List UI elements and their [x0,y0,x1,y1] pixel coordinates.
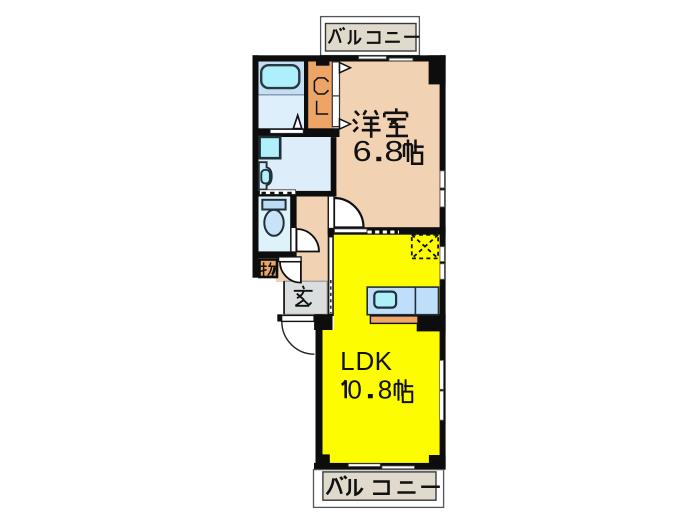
svg-text:L: L [340,346,354,376]
svg-text:6: 6 [353,136,372,168]
svg-text:K: K [375,346,393,376]
svg-text:D: D [356,346,375,376]
svg-text:8: 8 [384,136,403,168]
svg-text:0: 0 [347,374,361,404]
svg-text:8: 8 [378,374,392,404]
